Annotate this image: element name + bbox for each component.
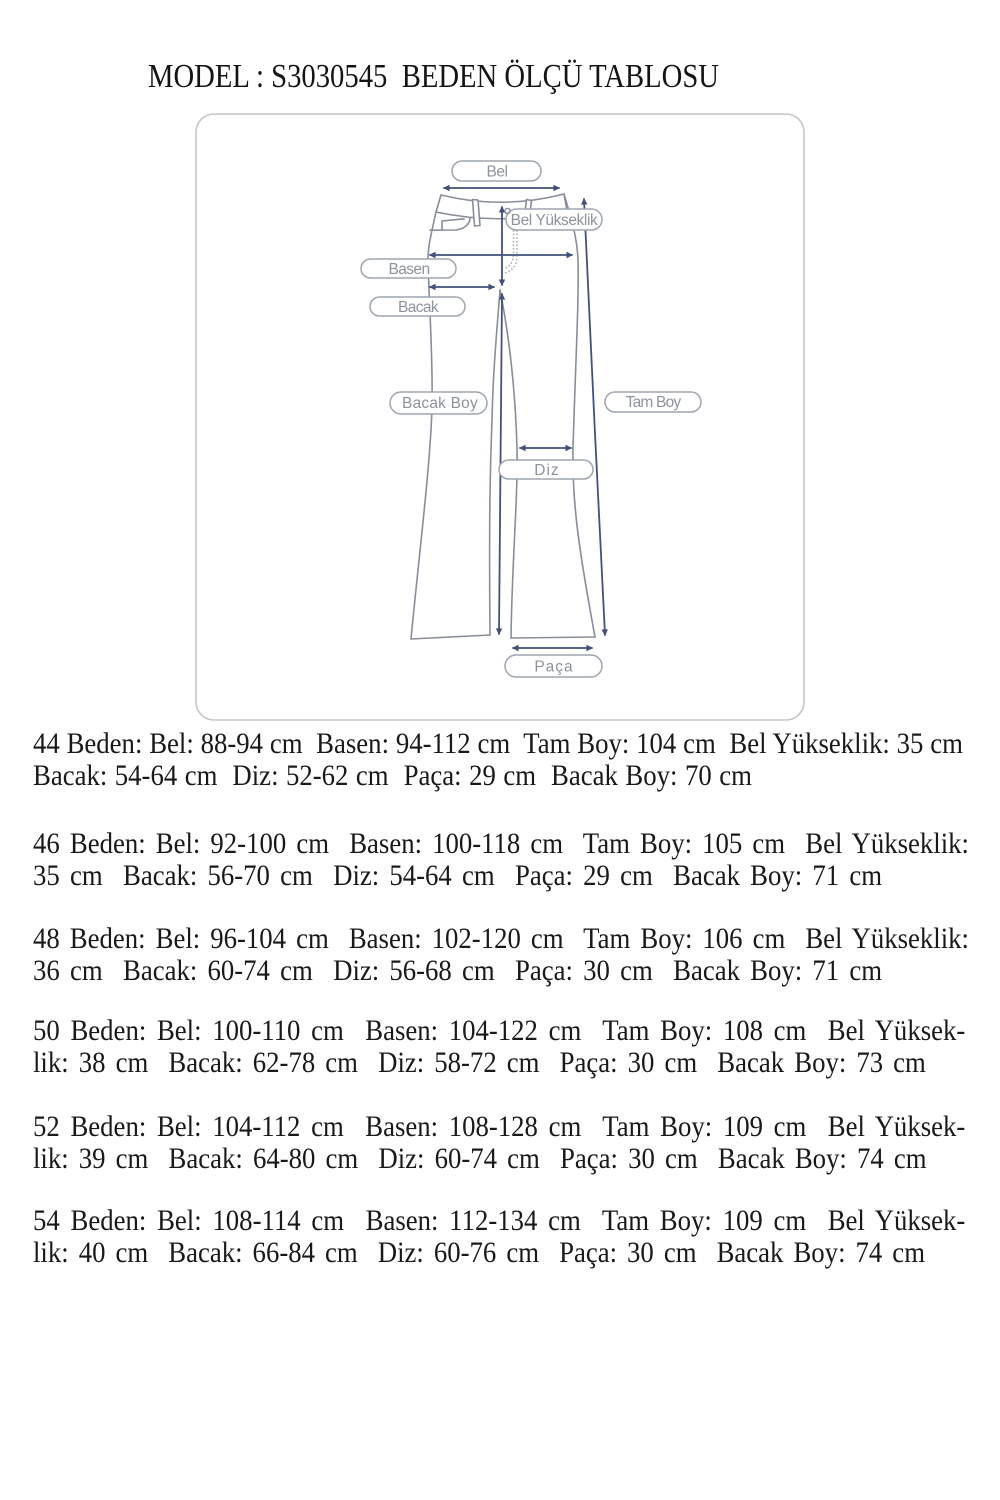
svg-text:Bacak Boy: Bacak Boy bbox=[402, 395, 478, 412]
svg-text:Bacak: Bacak bbox=[398, 299, 439, 316]
svg-text:Bel: Bel bbox=[487, 164, 508, 181]
svg-text:Diz: Diz bbox=[534, 462, 559, 479]
svg-text:Tam Boy: Tam Boy bbox=[626, 394, 682, 411]
svg-text:Basen: Basen bbox=[389, 261, 430, 278]
svg-text:Paça: Paça bbox=[534, 659, 573, 676]
svg-text:Bel Yükseklik: Bel Yükseklik bbox=[511, 212, 598, 229]
